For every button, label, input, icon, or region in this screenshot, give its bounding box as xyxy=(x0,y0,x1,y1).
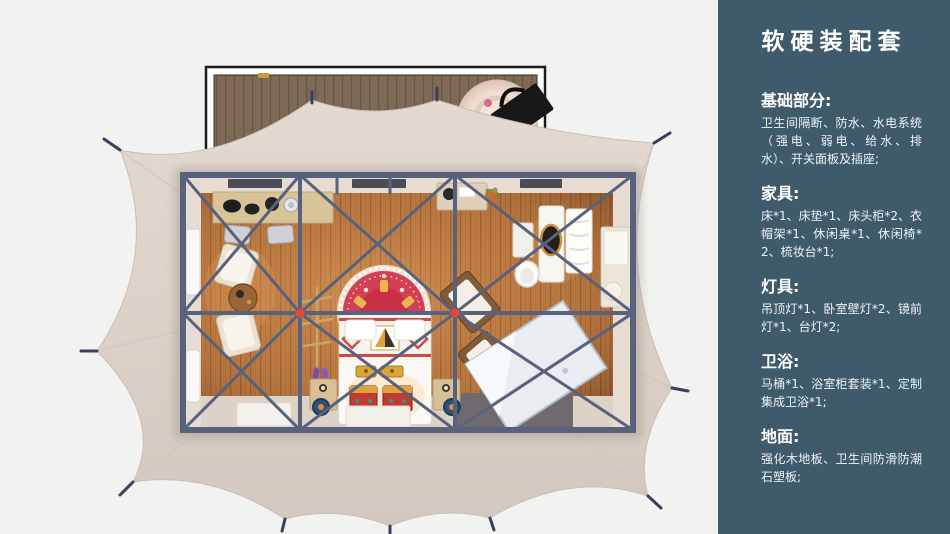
section-basics-heading: 基础部分: xyxy=(761,91,922,110)
wall-window xyxy=(186,229,200,295)
illustration-canvas xyxy=(0,0,718,534)
ceiling-vent xyxy=(228,179,282,188)
sidebar-title: 软硬装配套 xyxy=(718,28,950,57)
section-bathroom-body: 马桶*1、浴室柜套装*1、定制集成卫浴*1; xyxy=(761,375,922,411)
section-lighting-body: 吊顶灯*1、卧室壁灯*2、镜前灯*1、台灯*2; xyxy=(761,300,922,336)
section-lighting-heading: 灯具: xyxy=(761,277,922,296)
frame-hub-connector xyxy=(296,309,305,318)
section-flooring: 地面: 强化木地板、卫生间防滑防潮石塑板; xyxy=(761,427,922,486)
floor-mat xyxy=(346,406,410,427)
section-bathroom-heading: 卫浴: xyxy=(761,352,922,371)
room-interior xyxy=(175,168,641,438)
section-lighting: 灯具: 吊顶灯*1、卧室壁灯*2、镜前灯*1、台灯*2; xyxy=(761,277,922,336)
pillow xyxy=(345,320,376,340)
section-furniture-body: 床*1、床垫*1、床头柜*2、衣帽架*1、休闲桌*1、休闲椅*2、梳妆台*1; xyxy=(761,207,922,261)
section-flooring-body: 强化木地板、卫生间防滑防潮石塑板; xyxy=(761,450,922,486)
page: 软硬装配套 基础部分: 卫生间隔断、防水、水电系统（强电、弱电、给水、排水）、开… xyxy=(0,0,950,534)
section-basics-body: 卫生间隔断、防水、水电系统（强电、弱电、给水、排水）、开关面板及插座; xyxy=(761,114,922,168)
pillow xyxy=(394,320,425,340)
section-flooring-heading: 地面: xyxy=(761,427,922,446)
tent-floorplan-illustration xyxy=(0,0,718,534)
section-bathroom: 卫浴: 马桶*1、浴室柜套装*1、定制集成卫浴*1; xyxy=(761,352,922,411)
frame-hub-connector xyxy=(451,309,460,318)
section-furniture: 家具: 床*1、床垫*1、床头柜*2、衣帽架*1、休闲桌*1、休闲椅*2、梳妆台… xyxy=(761,184,922,261)
wall-window xyxy=(186,350,200,402)
section-furniture-heading: 家具: xyxy=(761,184,922,203)
ceiling-vent xyxy=(352,179,406,188)
section-basics: 基础部分: 卫生间隔断、防水、水电系统（强电、弱电、给水、排水）、开关面板及插座… xyxy=(761,91,922,168)
leisure-table xyxy=(229,284,257,312)
spec-sidebar: 软硬装配套 基础部分: 卫生间隔断、防水、水电系统（强电、弱电、给水、排水）、开… xyxy=(718,0,950,534)
ceiling-vent xyxy=(520,179,562,188)
